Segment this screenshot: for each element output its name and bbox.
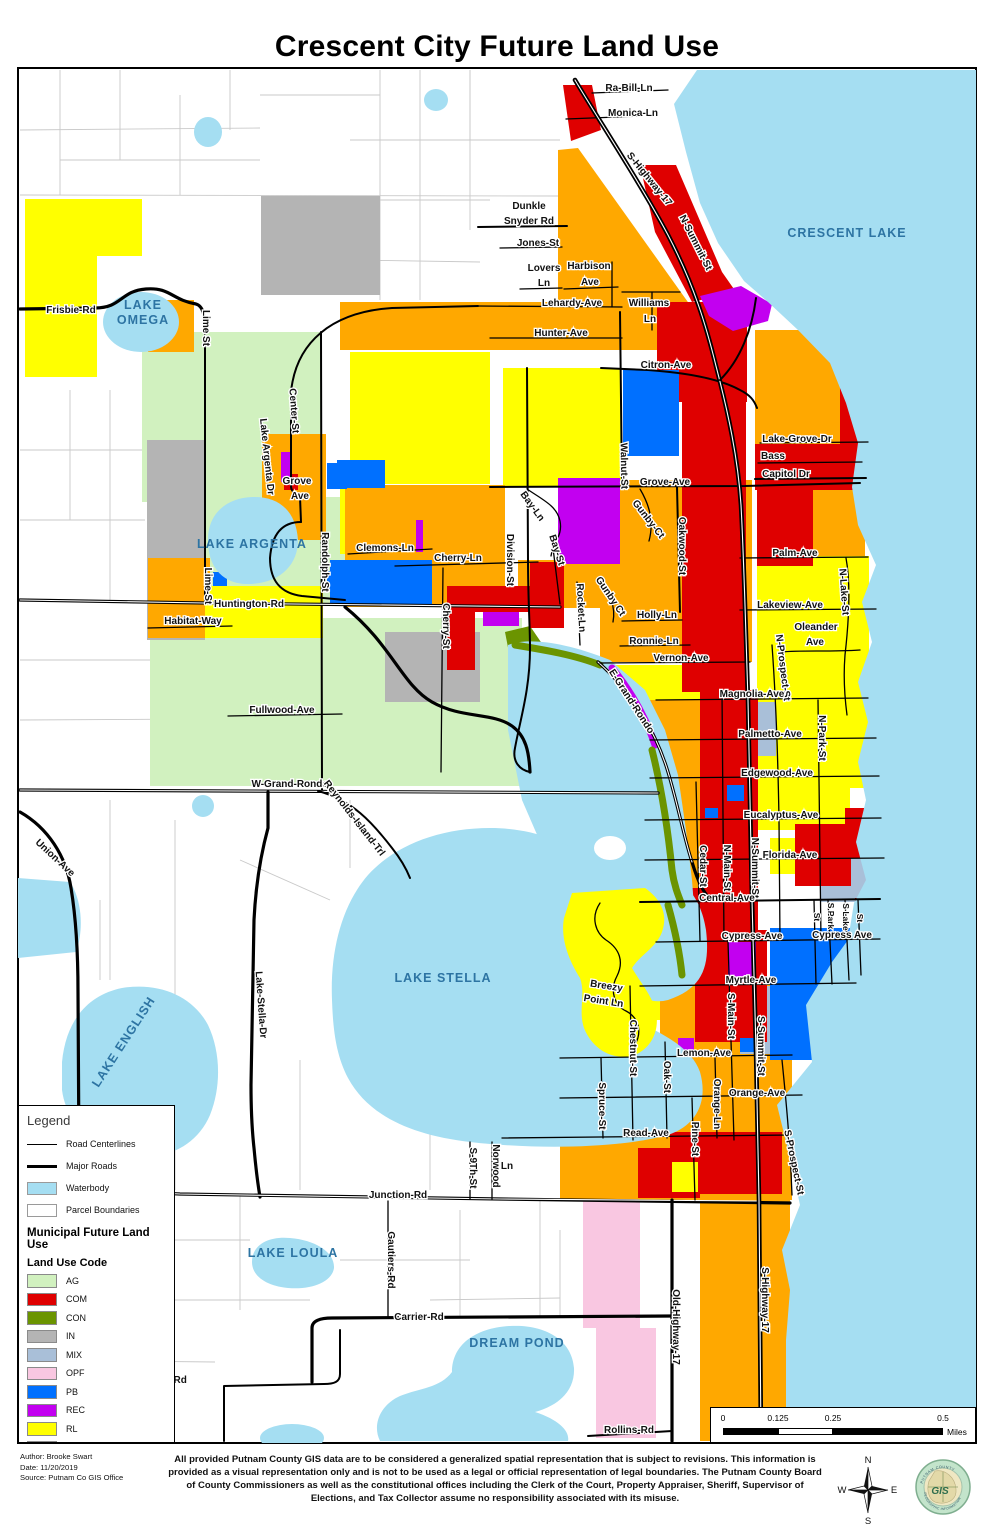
gis-logo-text: GIS bbox=[931, 1486, 949, 1497]
street-label: N-Summit-St bbox=[749, 838, 760, 899]
street-label: Ave bbox=[581, 277, 599, 288]
lake-label: CRESCENT LAKE bbox=[787, 226, 906, 240]
street-label: Lake-Grove-Dr bbox=[762, 434, 832, 445]
legend-swatch bbox=[27, 1165, 57, 1168]
page: Crescent City Future Land Use bbox=[0, 0, 994, 1536]
street-label: Monica-Ln bbox=[608, 108, 658, 119]
street-label: Ronnie-Ln bbox=[629, 636, 678, 647]
legend-landuse-COM: COM bbox=[27, 1293, 168, 1307]
street-label: Old-Highway-17 bbox=[670, 1289, 681, 1365]
street-label: Vernon-Ave bbox=[653, 653, 709, 664]
landuse-code-label: REC bbox=[66, 1405, 85, 1415]
compass-n: N bbox=[865, 1455, 872, 1466]
lake-stella-shape bbox=[332, 828, 707, 1147]
lake-label: LAKE LOULA bbox=[248, 1246, 339, 1260]
street-label: Lovers bbox=[528, 263, 561, 274]
credit-source: Source: Putnam Co GIS Office bbox=[20, 1473, 123, 1484]
street-label: Hunter-Ave bbox=[534, 328, 588, 339]
street-label: Habitat-Way bbox=[164, 616, 222, 627]
street-label: Ln bbox=[644, 314, 656, 325]
compass-s: S bbox=[865, 1516, 871, 1527]
compass-rose: N S E W bbox=[836, 1450, 900, 1530]
street-label: Cedar-St bbox=[697, 845, 708, 887]
land-use-parcels-shape bbox=[682, 400, 746, 692]
street-label: Lemon-Ave bbox=[677, 1048, 732, 1059]
street-label: Orange-Ln bbox=[711, 1079, 722, 1130]
legend-item-label: Road Centerlines bbox=[66, 1139, 136, 1149]
land-use-parcels-shape bbox=[705, 808, 718, 818]
street-label: Spruce-St bbox=[596, 1082, 607, 1130]
scale-tick: 0.25 bbox=[825, 1413, 842, 1423]
scale-segment bbox=[778, 1428, 833, 1435]
street-label: St bbox=[812, 913, 822, 922]
credit-date: Date: 11/20/2019 bbox=[20, 1463, 123, 1474]
landuse-code-label: OPF bbox=[66, 1368, 85, 1378]
landuse-swatch-CON bbox=[27, 1311, 57, 1325]
landuse-code-label: CON bbox=[66, 1313, 86, 1323]
landuse-code-label: IN bbox=[66, 1331, 75, 1341]
street-label: Oleander bbox=[794, 622, 837, 633]
street-label: Ln bbox=[501, 1161, 513, 1172]
landuse-swatch-MIX bbox=[27, 1348, 57, 1362]
landuse-code-label: RM bbox=[66, 1442, 80, 1443]
street-label: Grove bbox=[283, 476, 312, 487]
land-use-parcels-shape bbox=[700, 1200, 790, 1441]
scale-tick: 0.125 bbox=[767, 1413, 788, 1423]
landuse-swatch-RM bbox=[27, 1441, 57, 1444]
lake-label: LAKE STELLA bbox=[394, 971, 491, 985]
legend-landuse-RL: RL bbox=[27, 1422, 168, 1436]
waterbodies-shape bbox=[192, 795, 214, 817]
legend-landuse-AG: AG bbox=[27, 1274, 168, 1288]
land-use-parcels-shape bbox=[327, 463, 347, 489]
street-label: Capitol Dr bbox=[762, 469, 810, 480]
street-label: Carrier-Rd bbox=[394, 1312, 443, 1323]
street-label: Snyder Rd bbox=[504, 216, 554, 227]
street-label: Magnolia-Ave bbox=[720, 689, 785, 700]
legend-item-major-roads: Major Roads bbox=[27, 1159, 168, 1173]
street-label: Williams bbox=[629, 298, 670, 309]
compass-rose-shape-shape bbox=[868, 1490, 888, 1494]
land-use-parcels-shape bbox=[503, 368, 621, 486]
gis-logo: GIS PUTNAM COUNTY GEOGRAPHIC INFORMATION bbox=[913, 1457, 973, 1517]
waterbodies-shape bbox=[424, 89, 448, 111]
legend-landuse-PB: PB bbox=[27, 1385, 168, 1399]
street-label: Huntington-Rd bbox=[214, 599, 284, 610]
landuse-code-label: PB bbox=[66, 1387, 78, 1397]
street-label: Frisbie-Rd bbox=[46, 305, 95, 316]
land-use-parcels-shape bbox=[758, 788, 850, 830]
waterbodies-shape bbox=[194, 117, 222, 147]
land-use-parcels-shape bbox=[483, 612, 519, 626]
legend-landuse-RM: RM bbox=[27, 1441, 168, 1444]
legend-landuse-CON: CON bbox=[27, 1311, 168, 1325]
street-label: S-Summit-St bbox=[755, 1016, 766, 1077]
landuse-swatch-PB bbox=[27, 1385, 57, 1399]
street-label: Ra-Bill-Ln bbox=[605, 83, 652, 94]
legend-item-label: Parcel Boundaries bbox=[66, 1205, 140, 1215]
legend-landuse-MIX: MIX bbox=[27, 1348, 168, 1362]
compass-rose-shape-shape bbox=[868, 1467, 872, 1490]
landuse-swatch-IN bbox=[27, 1330, 57, 1344]
legend-section-title: Municipal Future Land Use bbox=[27, 1227, 168, 1251]
street-label: Oakwood-St bbox=[676, 517, 687, 576]
street-label: Jones-St bbox=[517, 238, 560, 249]
street-label: Myrtle-Ave bbox=[726, 975, 777, 986]
waterbodies-shape bbox=[260, 1424, 324, 1452]
street-label: Central-Ave bbox=[699, 893, 755, 904]
scale-segment bbox=[723, 1428, 778, 1435]
legend-landuse-OPF: OPF bbox=[27, 1367, 168, 1381]
waterbodies-shape bbox=[594, 836, 626, 860]
street-label: Florida-Ave bbox=[763, 850, 818, 861]
legend-item-label: Major Roads bbox=[66, 1161, 117, 1171]
legend-items: Road CenterlinesMajor RoadsWaterbodyParc… bbox=[27, 1137, 168, 1217]
street-label: Pine-St bbox=[689, 1122, 700, 1157]
legend-landuse-IN: IN bbox=[27, 1330, 168, 1344]
street-label: Oak-St bbox=[661, 1061, 672, 1094]
lake-label: OMEGA bbox=[117, 313, 169, 327]
legend-swatch bbox=[27, 1144, 57, 1145]
street-label: S Lake bbox=[841, 903, 851, 931]
land-use-parcels-shape bbox=[416, 520, 423, 552]
street-label: Ave bbox=[806, 637, 824, 648]
landuse-swatch-COM bbox=[27, 1293, 57, 1307]
land-use-overlays-shape bbox=[205, 586, 323, 638]
landuse-code-label: MIX bbox=[66, 1350, 82, 1360]
land-use-parcels-shape bbox=[623, 370, 679, 456]
landuse-code-label: RL bbox=[66, 1424, 78, 1434]
landuse-code-label: COM bbox=[66, 1294, 87, 1304]
compass-rose-shape: N S E W bbox=[838, 1455, 898, 1527]
street-label: N-Main-St bbox=[721, 845, 732, 892]
scale-bar: 0 0.125 0.25 0.5 Miles bbox=[710, 1407, 976, 1443]
credit-author: Author: Brooke Swart bbox=[20, 1452, 123, 1463]
street-label: Division-St bbox=[504, 534, 515, 587]
scale-unit: Miles bbox=[947, 1427, 967, 1437]
legend: Legend Road CenterlinesMajor RoadsWaterb… bbox=[18, 1105, 175, 1443]
legend-landuse-REC: REC bbox=[27, 1404, 168, 1418]
landuse-code-label: AG bbox=[66, 1276, 79, 1286]
landuse-swatch-OPF bbox=[27, 1367, 57, 1381]
map-credits: Author: Brooke Swart Date: 11/20/2019 So… bbox=[20, 1452, 123, 1484]
street-label: Ave bbox=[291, 491, 309, 502]
street-label: Eucalyptus-Ave bbox=[744, 810, 819, 821]
street-label: Dunkle bbox=[512, 201, 546, 212]
compass-w: W bbox=[838, 1485, 847, 1496]
scale-tick: 0.5 bbox=[937, 1413, 949, 1423]
street-label: S-Highway-17 bbox=[759, 1267, 770, 1333]
street-label: Cherry-St bbox=[440, 603, 451, 649]
street-label: Orange-Ave bbox=[729, 1088, 786, 1099]
street-label: Cypress Ave bbox=[812, 930, 872, 941]
street-label: Lime St bbox=[200, 310, 211, 347]
compass-rose-shape-shape bbox=[864, 1490, 868, 1513]
street-label: Ln bbox=[538, 278, 550, 289]
legend-item-parcel-boundaries: Parcel Boundaries bbox=[27, 1203, 168, 1217]
landuse-swatch-AG bbox=[27, 1274, 57, 1288]
street-label: Gautiers-Rd bbox=[385, 1231, 396, 1288]
legend-landuse-rows: AGCOMCONINMIXOPFPBRECRLRM bbox=[27, 1274, 168, 1443]
street-label: Randolph-St bbox=[319, 532, 330, 592]
street-label: N-Park-St bbox=[816, 715, 827, 761]
land-use-parcels-shape bbox=[261, 196, 380, 295]
street-label: Lakeview-Ave bbox=[757, 600, 823, 611]
legend-item-label: Waterbody bbox=[66, 1183, 109, 1193]
legend-subsection-title: Land Use Code bbox=[27, 1257, 168, 1269]
land-use-parcels-shape bbox=[727, 785, 744, 801]
lake-label: LAKE bbox=[124, 298, 162, 312]
street-label: S-9Th-St bbox=[467, 1147, 478, 1189]
street-label: Read-Ave bbox=[623, 1128, 669, 1139]
street-label: Edgewood-Ave bbox=[741, 768, 813, 779]
scale-tick: 0 bbox=[721, 1413, 726, 1423]
street-label: Palmetto-Ave bbox=[738, 729, 802, 740]
street-label: Harbison bbox=[567, 261, 610, 272]
street-label: Cypress-Ave bbox=[722, 931, 783, 942]
scale-segment bbox=[833, 1428, 943, 1435]
street-label: Clemons-Ln bbox=[356, 543, 414, 554]
street-label: Junction-Rd bbox=[369, 1190, 427, 1201]
street-label: Lime-St bbox=[202, 568, 213, 605]
lake-label: DREAM POND bbox=[469, 1336, 564, 1350]
street-label: Grove-Ave bbox=[640, 477, 691, 488]
disclaimer-text: All provided Putnam County GIS data are … bbox=[167, 1453, 823, 1505]
street-label: Cherry-Ln bbox=[434, 553, 482, 564]
street-label: Palm-Ave bbox=[772, 548, 818, 559]
landuse-swatch-RL bbox=[27, 1422, 57, 1436]
street-label: Citron-Ave bbox=[641, 360, 692, 371]
street-label: Holly-Ln bbox=[637, 610, 677, 621]
street-label: St bbox=[855, 914, 865, 923]
legend-item-road-centerlines: Road Centerlines bbox=[27, 1137, 168, 1151]
land-use-parcels-shape bbox=[558, 478, 620, 564]
legend-swatch bbox=[27, 1204, 57, 1217]
legend-swatch bbox=[27, 1182, 57, 1195]
lake-label: LAKE ARGENTA bbox=[197, 537, 307, 551]
street-label: S Park bbox=[826, 903, 836, 930]
street-label: Lehardy-Ave bbox=[542, 298, 603, 309]
street-label: Walnut-St bbox=[618, 443, 630, 490]
street-label: W-Grand-Rondo bbox=[251, 779, 328, 790]
landuse-swatch-REC bbox=[27, 1404, 57, 1418]
legend-item-waterbody: Waterbody bbox=[27, 1181, 168, 1195]
compass-e: E bbox=[891, 1485, 897, 1496]
street-label: Rollins-Rd bbox=[604, 1425, 654, 1436]
compass-rose-shape-shape bbox=[848, 1486, 868, 1490]
street-label: Norwood bbox=[490, 1144, 501, 1187]
street-label: Fullwood-Ave bbox=[249, 705, 315, 716]
street-label: Bass bbox=[761, 451, 785, 462]
street-label: S-Main-St bbox=[725, 993, 736, 1040]
legend-title: Legend bbox=[27, 1113, 168, 1128]
street-label: Chestnut-St bbox=[627, 1020, 638, 1077]
